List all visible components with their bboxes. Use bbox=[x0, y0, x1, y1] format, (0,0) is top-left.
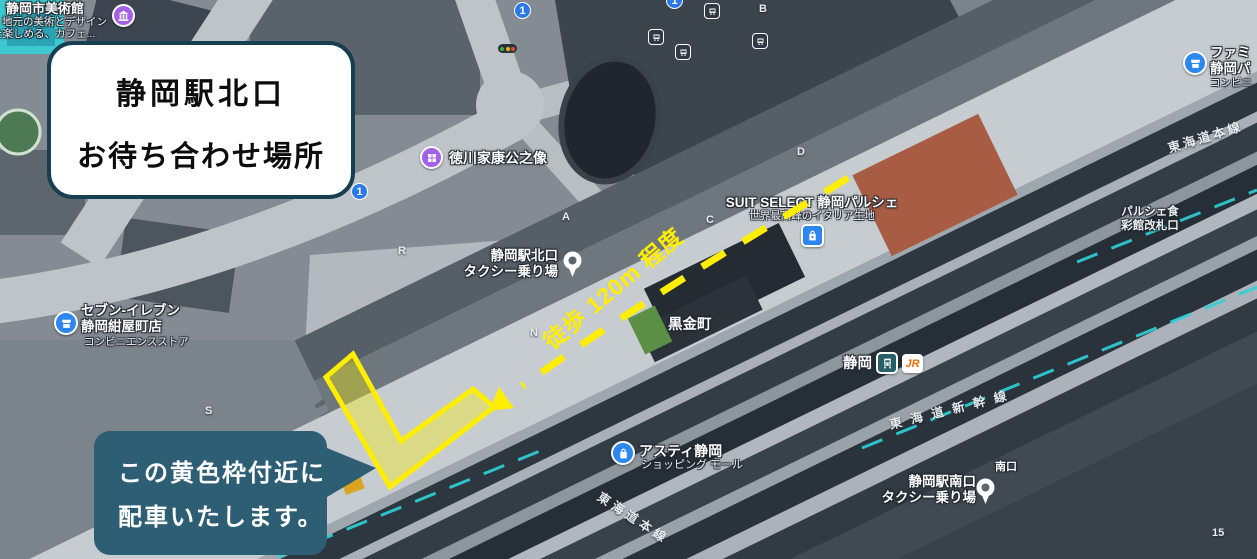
poi-station-title[interactable]: 静岡 bbox=[843, 356, 872, 373]
poi-asty-title[interactable]: アスティ静岡 bbox=[639, 443, 722, 460]
poi-south-taxi-line1[interactable]: 静岡駅南口 bbox=[876, 474, 976, 490]
letter-marker-c: C bbox=[706, 214, 714, 226]
poi-south-taxi-line2[interactable]: タクシー乗り場 bbox=[876, 490, 976, 506]
poi-seven-eleven-line2[interactable]: 静岡紺屋町店 bbox=[81, 319, 180, 335]
suit-select-bag-icon[interactable] bbox=[801, 224, 824, 247]
route-1-shield[interactable]: 1 bbox=[351, 183, 368, 200]
asty-bag-icon[interactable] bbox=[611, 441, 635, 465]
poi-statue-title[interactable]: 徳川家康公之像 bbox=[449, 150, 547, 167]
letter-marker-b: B bbox=[759, 3, 767, 15]
poi-asty-sub: ショッピング モール bbox=[641, 459, 743, 472]
meeting-bubble-line1: 静岡駅北口 bbox=[51, 69, 351, 113]
bus-stop-icon[interactable] bbox=[675, 44, 691, 60]
dispatch-bubble: この黄色枠付近に 配車いたします。 bbox=[94, 431, 327, 555]
poi-seven-eleven-line1[interactable]: セブン-イレブン bbox=[81, 303, 180, 319]
parche-gate-line1: パルシェ食 bbox=[1112, 206, 1188, 220]
bus-stop-icon[interactable] bbox=[704, 3, 720, 19]
familymart-store-icon[interactable] bbox=[1183, 51, 1207, 75]
traffic-light-icon bbox=[498, 44, 517, 53]
letter-marker-s: S bbox=[205, 405, 212, 417]
letter-marker-r: R bbox=[398, 245, 406, 257]
seven-eleven-store-icon[interactable] bbox=[54, 311, 78, 335]
museum-icon[interactable] bbox=[112, 4, 135, 27]
poi-familymart-line1[interactable]: ファミ bbox=[1210, 45, 1251, 61]
poi-museum-title[interactable]: 静岡市美術館 bbox=[6, 1, 84, 16]
poi-suit-select-title[interactable]: SUIT SELECT 静岡パルシェ bbox=[722, 195, 902, 211]
poi-familymart-line3: コンビニ bbox=[1210, 77, 1252, 89]
parche-gate-line2: 彩館改札口 bbox=[1112, 220, 1188, 234]
poi-kurogane-title[interactable]: 黒金町 bbox=[668, 317, 712, 334]
statue-icon[interactable] bbox=[420, 146, 443, 169]
poi-museum-sub1: 地元の美術とデザイン bbox=[2, 16, 107, 28]
meeting-point-bubble: 静岡駅北口 お待ち合わせ場所 bbox=[47, 41, 355, 199]
south-taxi-pin-icon[interactable] bbox=[976, 478, 995, 510]
jr-logo-icon[interactable]: JR bbox=[902, 354, 923, 373]
letter-marker-d: D bbox=[797, 146, 805, 158]
satellite-map[interactable]: 静岡市美術館 地元の美術とデザイン を楽しめる、カフェ... 徳川家康公之像 静… bbox=[0, 0, 1257, 559]
north-taxi-pin-icon[interactable] bbox=[563, 251, 582, 283]
dispatch-bubble-line2: 配車いたします。 bbox=[118, 497, 324, 532]
route-1-shield[interactable]: 1 bbox=[514, 2, 531, 19]
dispatch-bubble-tail bbox=[320, 438, 382, 508]
bus-stop-icon[interactable] bbox=[648, 29, 664, 45]
south-exit-label: 南口 bbox=[995, 461, 1017, 474]
poi-suit-select-sub: 世界最高峰のイタリア生地 bbox=[722, 210, 902, 222]
bus-stop-icon[interactable] bbox=[752, 33, 768, 49]
poi-seven-eleven-sub: コンビニエンスストア bbox=[84, 336, 189, 348]
train-station-icon[interactable] bbox=[876, 352, 898, 374]
poi-familymart-line2[interactable]: 静岡パ bbox=[1210, 61, 1251, 77]
meeting-bubble-line2: お待ち合わせ場所 bbox=[51, 133, 351, 175]
poi-north-taxi-line2[interactable]: タクシー乗り場 bbox=[458, 264, 558, 280]
platform-number-label: 15 bbox=[1212, 527, 1224, 539]
poi-north-taxi-line1[interactable]: 静岡駅北口 bbox=[458, 248, 558, 264]
poi-museum-sub2: を楽しめる、カフェ... bbox=[0, 28, 95, 40]
letter-marker-a: A bbox=[562, 211, 570, 223]
dispatch-bubble-line1: この黄色枠付近に bbox=[118, 453, 326, 488]
